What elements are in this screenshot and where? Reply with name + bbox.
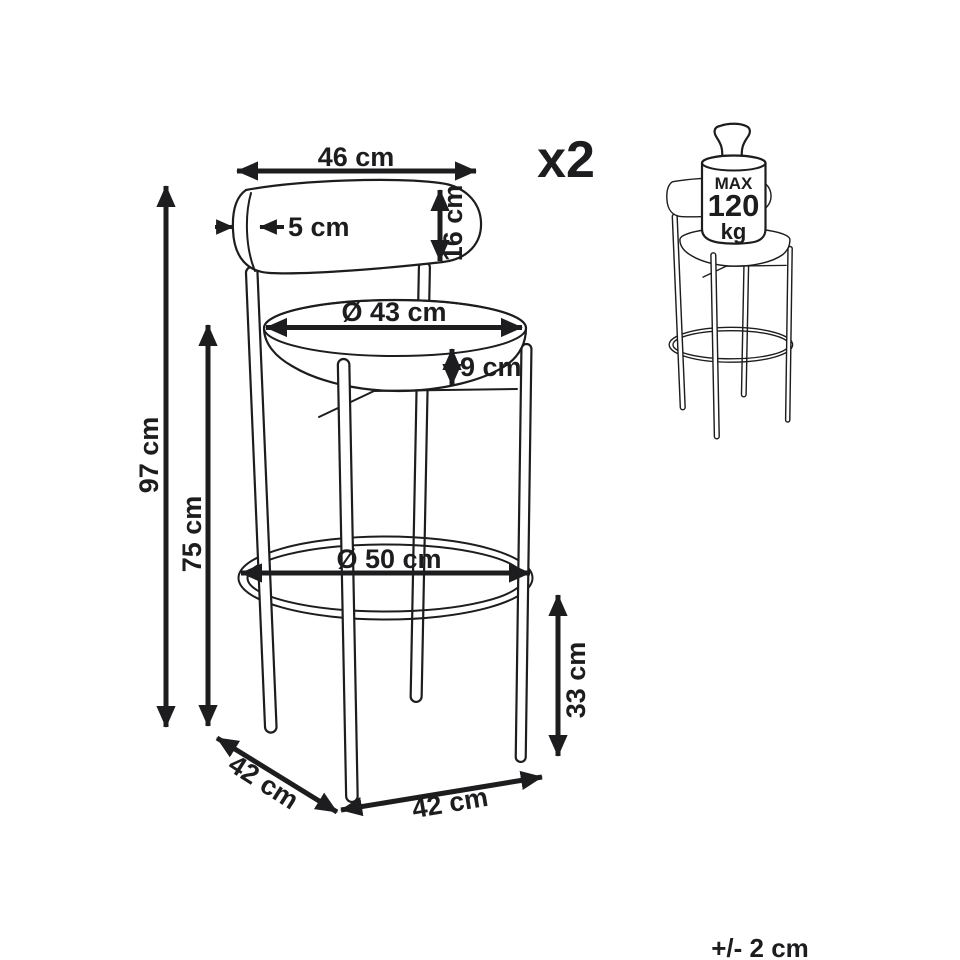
dim-seat-diameter-label: Ø 43 cm bbox=[341, 297, 446, 327]
dim-backrest-thickness-label: 5 cm bbox=[288, 212, 350, 242]
tolerance-label: +/- 2 cm bbox=[711, 933, 809, 960]
dim-backrest-width-label: 46 cm bbox=[318, 142, 395, 172]
dim-footrest-diameter-label: Ø 50 cm bbox=[336, 544, 441, 574]
right-leg bbox=[516, 344, 532, 762]
dim-footrest-height-label: 33 cm bbox=[561, 642, 591, 719]
quantity-label: x2 bbox=[537, 131, 595, 189]
max-load-value-label: 120 bbox=[708, 188, 760, 223]
mini-footrest-ring-inner bbox=[673, 331, 789, 359]
product-dimension-sheet: 46 cm 5 cm 16 cm Ø 43 cm 9 cm 97 cm 75 c… bbox=[0, 0, 960, 960]
dim-seat-height-label: 75 cm bbox=[177, 496, 207, 573]
dim-backrest-height-label: 16 cm bbox=[438, 185, 468, 262]
max-load-unit-label: kg bbox=[721, 219, 747, 244]
front-leg bbox=[338, 359, 358, 802]
dim-base-width-label: 42 cm bbox=[410, 782, 490, 824]
main-stool-drawing bbox=[233, 180, 533, 802]
stool-dimension-diagram: 46 cm 5 cm 16 cm Ø 43 cm 9 cm 97 cm 75 c… bbox=[0, 0, 960, 960]
weight-handle bbox=[715, 124, 750, 158]
max-load-weight: MAX 120 kg bbox=[702, 124, 766, 244]
dim-seat-thickness-label: 9 cm bbox=[460, 352, 522, 382]
dim-total-height-label: 97 cm bbox=[134, 417, 164, 494]
dim-base-depth-label: 42 cm bbox=[223, 749, 304, 815]
mini-right-leg bbox=[786, 246, 793, 422]
mini-front-leg bbox=[711, 253, 719, 439]
mini-footrest-ring-outer bbox=[669, 327, 792, 362]
